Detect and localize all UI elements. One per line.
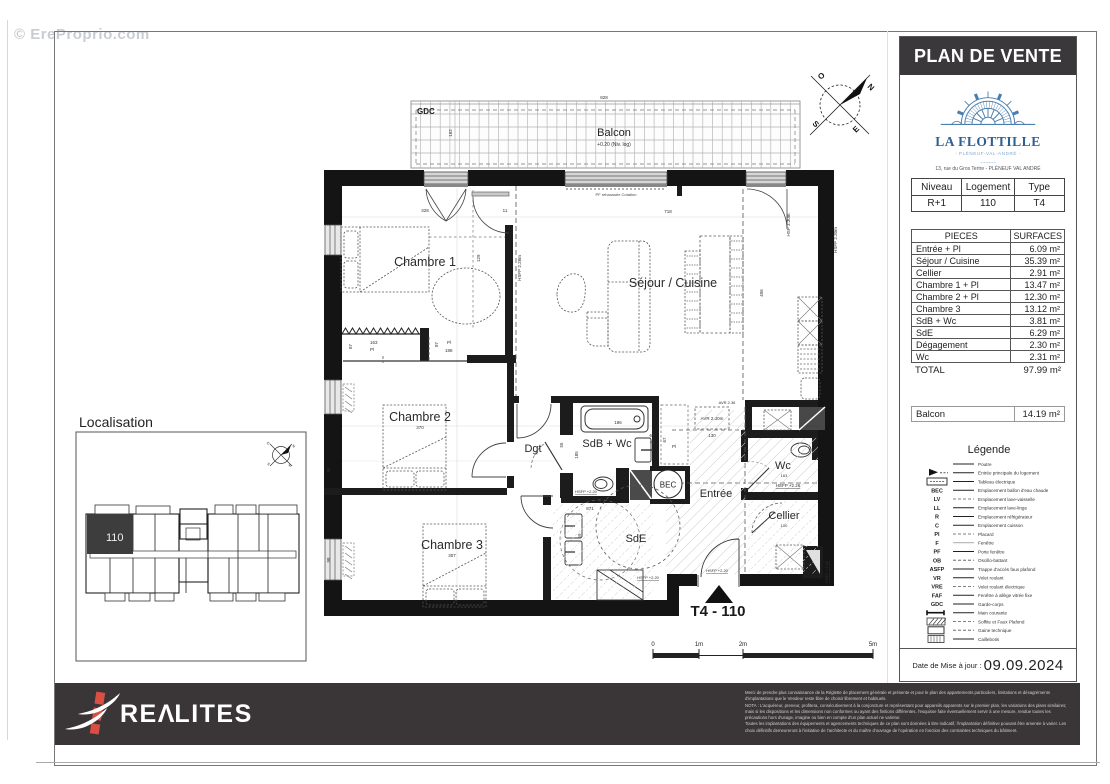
- svg-text:Pl: Pl: [447, 340, 451, 345]
- svg-text:55: 55: [559, 442, 564, 448]
- svg-text:370: 370: [416, 425, 424, 430]
- svg-text:N: N: [866, 82, 877, 93]
- svg-text:Volet roulant: Volet roulant: [978, 576, 1004, 581]
- svg-text:PF: PF: [933, 550, 941, 556]
- svg-text:F: F: [935, 541, 939, 547]
- svg-text:ASFP: ASFP: [930, 567, 945, 573]
- svg-text:Fenêtre: Fenêtre: [978, 541, 994, 546]
- svg-text:Chambre 3: Chambre 3: [421, 538, 483, 552]
- svg-text:110: 110: [106, 532, 124, 544]
- svg-text:100: 100: [781, 523, 788, 528]
- svg-text:185: 185: [574, 451, 579, 459]
- svg-text:Pl: Pl: [370, 347, 374, 352]
- svg-text:SdE: SdE: [626, 533, 647, 545]
- svg-text:Pl: Pl: [934, 532, 940, 538]
- svg-text:Poutre: Poutre: [978, 462, 992, 467]
- svg-text:0: 0: [651, 642, 655, 648]
- svg-text:188: 188: [445, 348, 453, 353]
- svg-text:S: S: [266, 462, 271, 467]
- svg-text:T4 - 110: T4 - 110: [690, 603, 745, 620]
- svg-text:828: 828: [600, 95, 608, 100]
- svg-text:HSFP +2.20: HSFP +2.20: [706, 568, 729, 573]
- svg-text:67: 67: [649, 433, 655, 438]
- svg-text:Pl: Pl: [650, 440, 654, 445]
- svg-text:Emplacement ballon d'eau chaud: Emplacement ballon d'eau chaude: [978, 488, 1049, 493]
- svg-text:129: 129: [476, 254, 481, 262]
- svg-text:87: 87: [434, 341, 439, 347]
- svg-text:130: 130: [708, 433, 716, 438]
- svg-text:Chambre 1: Chambre 1: [394, 255, 456, 269]
- svg-text:Fenêtre à allège vitrée fixe: Fenêtre à allège vitrée fixe: [978, 593, 1033, 598]
- svg-text:11: 11: [503, 208, 508, 213]
- svg-text:Trappe d'accès faux plafond: Trappe d'accès faux plafond: [978, 567, 1036, 572]
- svg-text:163: 163: [370, 340, 378, 345]
- svg-text:LL: LL: [934, 506, 941, 512]
- svg-text:406: 406: [759, 289, 764, 297]
- svg-text:+0.20 (Niv. log): +0.20 (Niv. log): [597, 142, 631, 148]
- svg-text:HSP 3.30m: HSP 3.30m: [786, 213, 791, 236]
- svg-text:N: N: [291, 444, 296, 449]
- svg-text:AVR 2.36: AVR 2.36: [719, 400, 737, 405]
- svg-text:871: 871: [586, 506, 594, 511]
- svg-text:718: 718: [664, 209, 672, 214]
- svg-text:HSFP +2.20: HSFP +2.20: [637, 575, 660, 580]
- svg-text:2m: 2m: [739, 642, 747, 648]
- svg-text:O: O: [266, 441, 271, 446]
- svg-text:67: 67: [662, 437, 667, 443]
- svg-text:Tableau électrique: Tableau électrique: [978, 479, 1016, 484]
- svg-text:HSFP 2.28m: HSFP 2.28m: [517, 255, 522, 281]
- svg-text:Entrée: Entrée: [700, 488, 732, 500]
- svg-text:163: 163: [781, 473, 788, 478]
- svg-text:S: S: [811, 119, 822, 130]
- svg-text:Cellier: Cellier: [768, 510, 800, 522]
- svg-text:Soffite et Faux Plafond: Soffite et Faux Plafond: [978, 619, 1025, 624]
- svg-text:Wc: Wc: [775, 460, 791, 472]
- svg-text:VR: VR: [933, 576, 941, 582]
- svg-text:Séjour / Cuisine: Séjour / Cuisine: [629, 276, 717, 290]
- svg-text:PF rehaussée Cotation: PF rehaussée Cotation: [596, 192, 637, 197]
- svg-text:R: R: [935, 515, 939, 521]
- svg-text:1m: 1m: [695, 642, 703, 648]
- svg-text:87: 87: [348, 343, 353, 349]
- svg-text:LV: LV: [934, 497, 941, 503]
- svg-text:98: 98: [326, 557, 331, 563]
- svg-text:O: O: [816, 71, 827, 82]
- svg-text:HSFP +2.26: HSFP +2.26: [776, 483, 801, 488]
- svg-text:5m: 5m: [869, 642, 877, 648]
- svg-text:GDC: GDC: [931, 602, 943, 608]
- svg-text:328: 328: [421, 208, 429, 213]
- svg-text:Volet roulant électrique: Volet roulant électrique: [978, 584, 1025, 589]
- svg-text:FAF: FAF: [932, 594, 943, 600]
- svg-text:59: 59: [577, 533, 582, 539]
- svg-text:GDC: GDC: [417, 107, 435, 116]
- svg-text:Chambre 2: Chambre 2: [389, 410, 451, 424]
- svg-text:98: 98: [326, 467, 331, 473]
- svg-text:HSFP +2.20: HSFP +2.20: [824, 560, 829, 583]
- svg-text:Localisation: Localisation: [79, 414, 153, 430]
- svg-text:E: E: [288, 463, 293, 468]
- svg-text:BEC: BEC: [660, 481, 677, 490]
- svg-text:Gaine technique: Gaine technique: [978, 628, 1012, 633]
- svg-text:Main courante: Main courante: [978, 611, 1008, 616]
- svg-text:HSFP +2.20: HSFP +2.20: [575, 489, 598, 494]
- svg-text:HSFP 2.30m: HSFP 2.30m: [833, 227, 838, 253]
- svg-text:Garde-corps: Garde-corps: [978, 602, 1004, 607]
- svg-text:Entrée principale du logement: Entrée principale du logement: [978, 471, 1040, 476]
- svg-text:186: 186: [614, 420, 622, 425]
- svg-text:BEC: BEC: [931, 488, 943, 494]
- svg-text:162: 162: [448, 129, 453, 137]
- svg-text:Emplacement lave-linge: Emplacement lave-linge: [978, 506, 1027, 511]
- svg-text:Emplacement cuisson: Emplacement cuisson: [978, 523, 1023, 528]
- svg-text:SdB + Wc: SdB + Wc: [582, 438, 632, 450]
- svg-text:Pl: Pl: [672, 444, 676, 449]
- svg-text:Emplacement lave-vaisselle: Emplacement lave-vaisselle: [978, 497, 1035, 502]
- svg-text:C: C: [935, 524, 939, 530]
- svg-text:Placard: Placard: [978, 532, 994, 537]
- svg-text:VRE: VRE: [931, 585, 943, 591]
- svg-text:Balcon: Balcon: [597, 127, 631, 139]
- svg-text:OB: OB: [933, 559, 941, 565]
- svg-text:Caillebotis: Caillebotis: [978, 637, 1000, 642]
- svg-text:Dgt: Dgt: [524, 443, 541, 455]
- svg-text:Emplacement réfrigérateur: Emplacement réfrigérateur: [978, 514, 1033, 519]
- svg-text:307: 307: [448, 553, 456, 558]
- svg-text:Porte fenêtre: Porte fenêtre: [978, 549, 1005, 554]
- svg-text:Oscillo-battant: Oscillo-battant: [978, 558, 1008, 563]
